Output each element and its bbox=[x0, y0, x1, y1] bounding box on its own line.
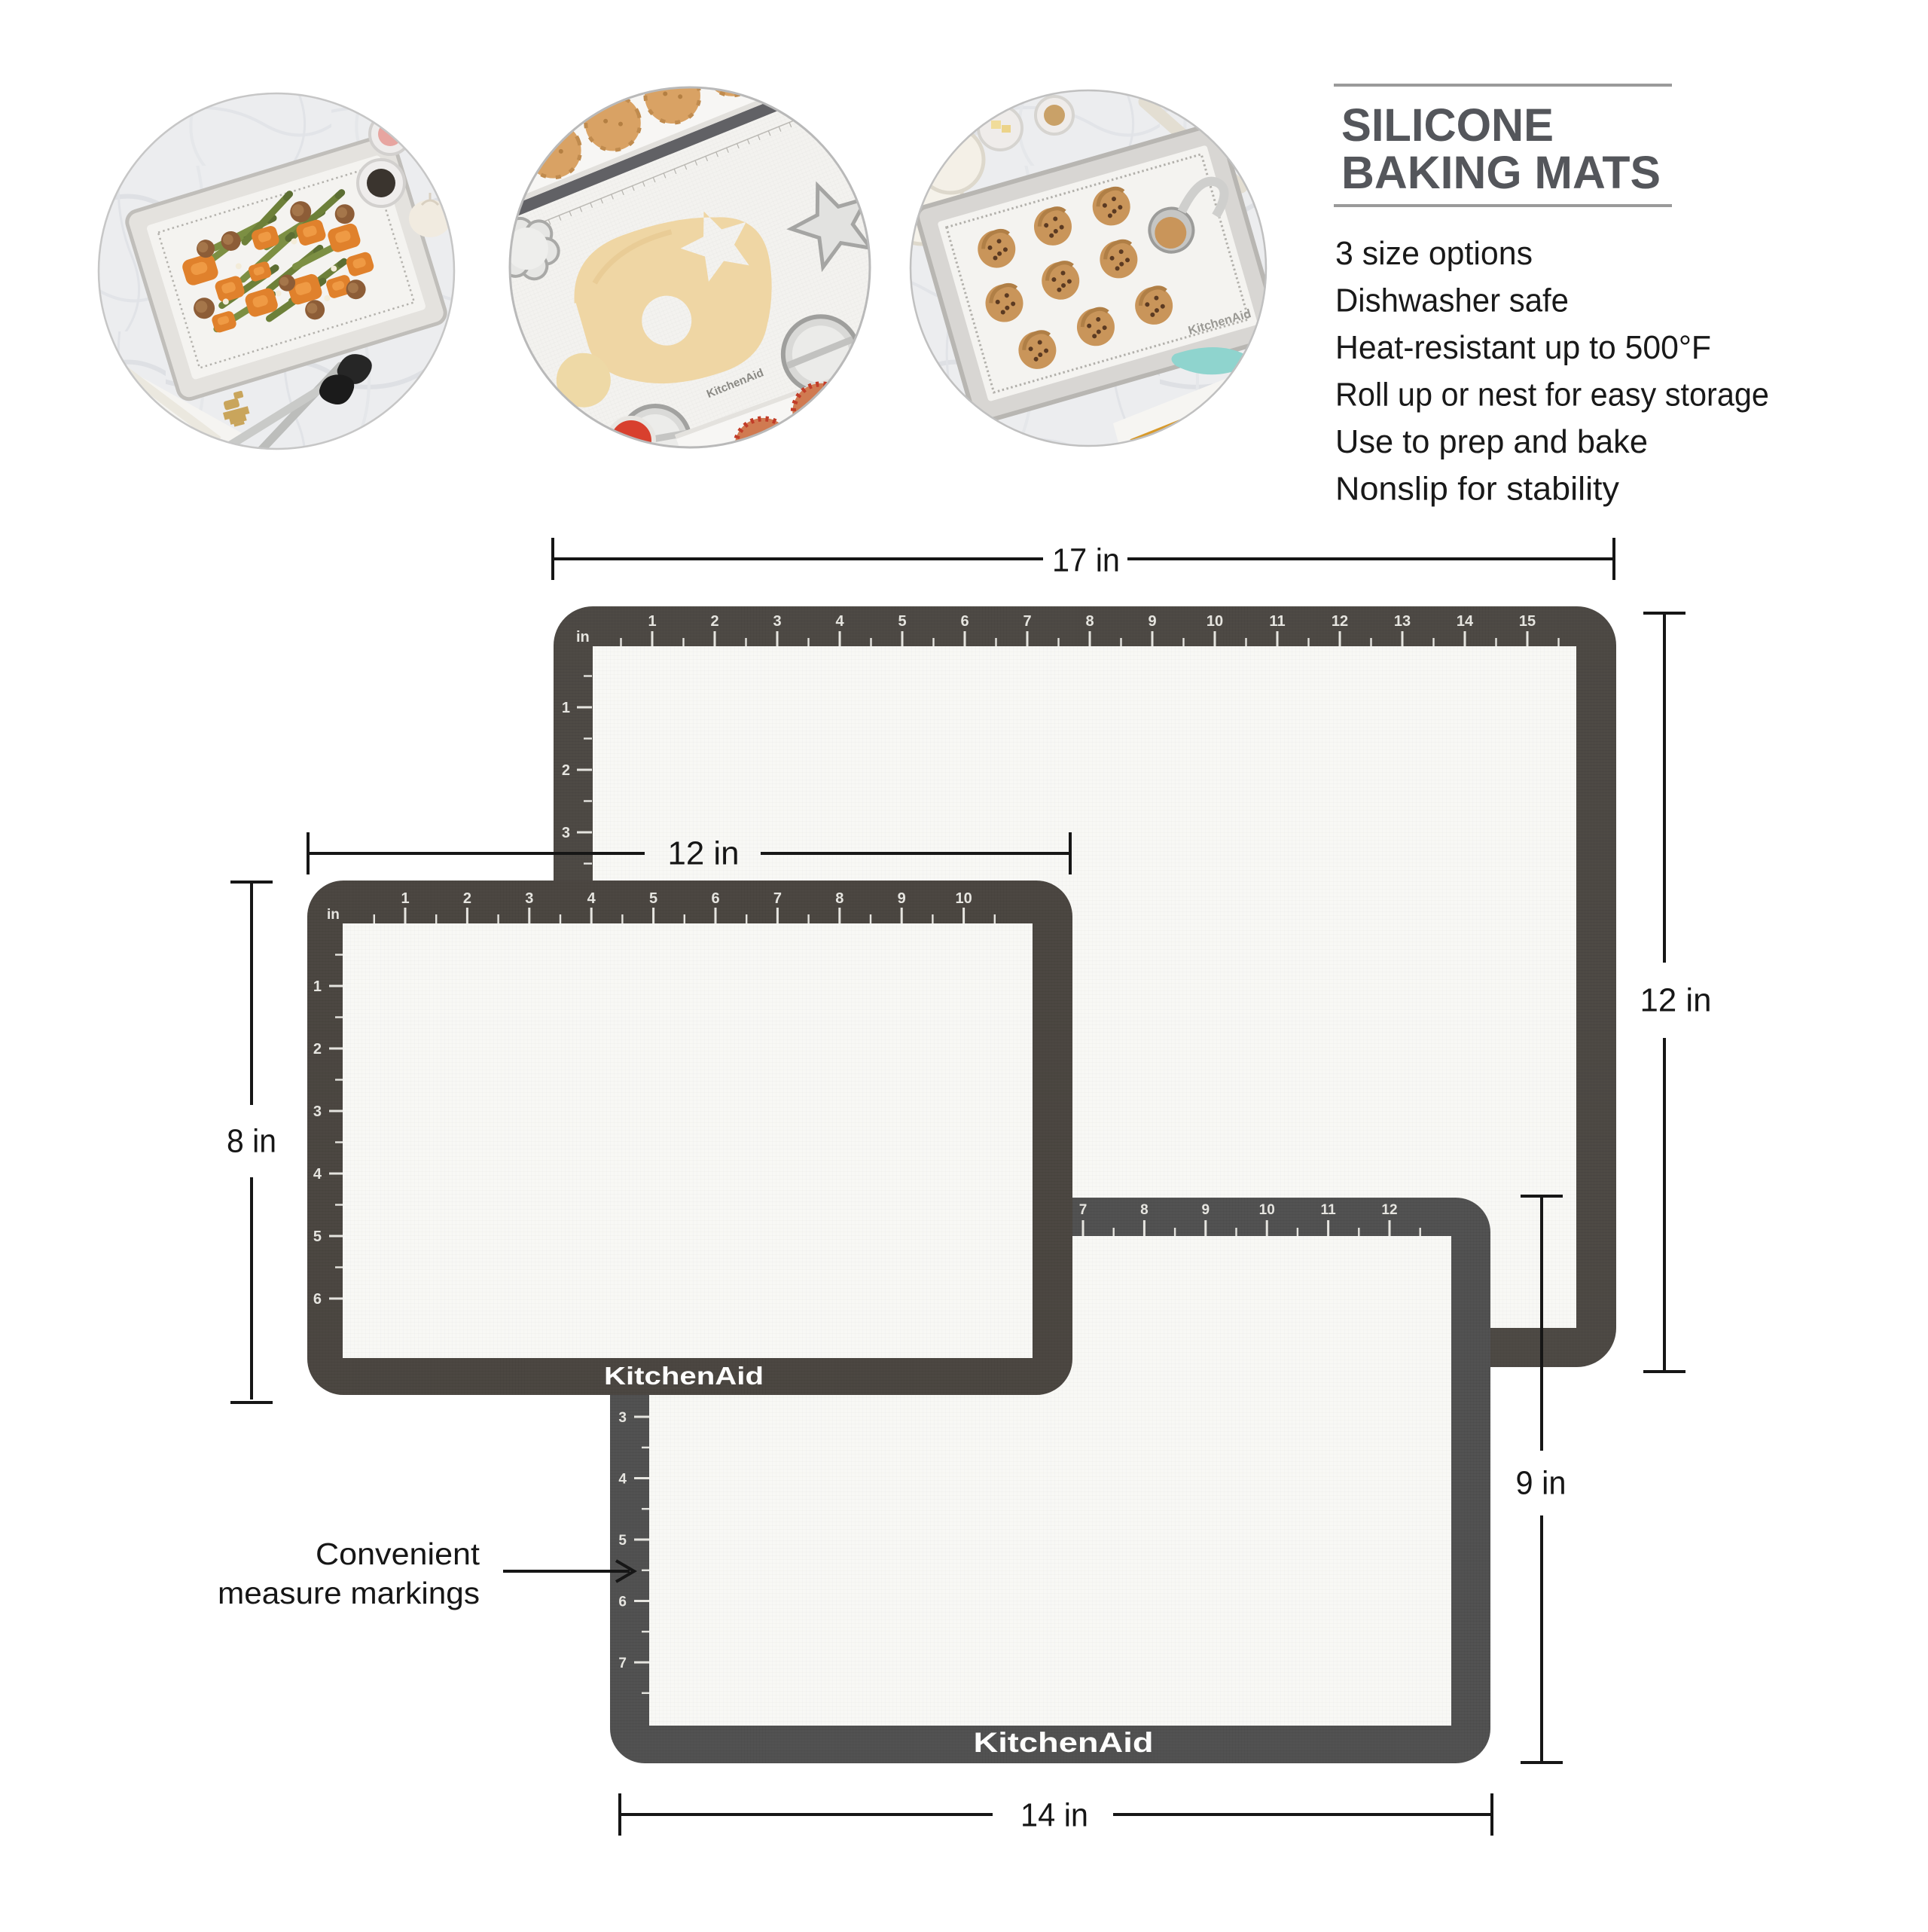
svg-text:measure markings: measure markings bbox=[218, 1576, 480, 1610]
svg-text:7: 7 bbox=[773, 890, 782, 907]
svg-text:1: 1 bbox=[562, 700, 570, 716]
svg-text:7: 7 bbox=[1079, 1202, 1088, 1218]
svg-text:11: 11 bbox=[1269, 613, 1285, 630]
svg-text:6: 6 bbox=[313, 1291, 322, 1308]
svg-text:8: 8 bbox=[1140, 1202, 1149, 1218]
svg-text:3: 3 bbox=[773, 613, 781, 630]
svg-text:SILICONE: SILICONE bbox=[1341, 99, 1554, 151]
svg-text:in: in bbox=[327, 907, 340, 923]
svg-text:17 in: 17 in bbox=[1052, 542, 1120, 579]
svg-text:BAKING MATS: BAKING MATS bbox=[1341, 147, 1661, 198]
svg-text:KitchenAid: KitchenAid bbox=[974, 1727, 1154, 1758]
svg-text:6: 6 bbox=[711, 890, 719, 907]
svg-text:4: 4 bbox=[835, 613, 844, 630]
svg-text:2: 2 bbox=[463, 890, 471, 907]
svg-text:4: 4 bbox=[587, 890, 596, 907]
svg-text:8: 8 bbox=[1085, 613, 1094, 630]
svg-text:10: 10 bbox=[955, 890, 972, 907]
svg-text:1: 1 bbox=[648, 613, 656, 630]
svg-text:Use to prep and bake: Use to prep and bake bbox=[1335, 423, 1648, 460]
svg-text:2: 2 bbox=[710, 613, 718, 630]
svg-text:Nonslip for stability: Nonslip for stability bbox=[1335, 471, 1619, 508]
svg-text:7: 7 bbox=[618, 1656, 627, 1671]
svg-text:2: 2 bbox=[313, 1041, 322, 1058]
svg-text:Heat-resistant up to 500°F: Heat-resistant up to 500°F bbox=[1335, 329, 1711, 366]
svg-text:9: 9 bbox=[898, 890, 906, 907]
svg-text:3: 3 bbox=[525, 890, 533, 907]
svg-text:Roll up or nest for easy stora: Roll up or nest for easy storage bbox=[1335, 377, 1769, 414]
svg-text:14 in: 14 in bbox=[1020, 1797, 1088, 1834]
svg-text:8: 8 bbox=[835, 890, 843, 907]
svg-text:13: 13 bbox=[1394, 613, 1411, 630]
svg-text:9 in: 9 in bbox=[1516, 1465, 1566, 1502]
svg-text:9: 9 bbox=[1202, 1202, 1210, 1218]
svg-text:Convenient: Convenient bbox=[316, 1537, 480, 1571]
svg-text:15: 15 bbox=[1519, 613, 1536, 630]
svg-text:4: 4 bbox=[618, 1472, 627, 1488]
svg-text:4: 4 bbox=[313, 1166, 322, 1183]
svg-text:5: 5 bbox=[898, 613, 906, 630]
svg-text:12 in: 12 in bbox=[668, 835, 740, 872]
svg-text:1: 1 bbox=[313, 978, 322, 995]
svg-text:6: 6 bbox=[618, 1595, 627, 1610]
svg-text:5: 5 bbox=[649, 890, 657, 907]
svg-text:14: 14 bbox=[1457, 613, 1474, 630]
svg-text:9: 9 bbox=[1148, 613, 1156, 630]
svg-text:KitchenAid: KitchenAid bbox=[604, 1362, 764, 1390]
svg-text:10: 10 bbox=[1207, 613, 1223, 630]
svg-text:3: 3 bbox=[313, 1103, 322, 1120]
svg-text:7: 7 bbox=[1023, 613, 1031, 630]
svg-text:5: 5 bbox=[313, 1228, 322, 1245]
svg-text:8 in: 8 in bbox=[227, 1123, 276, 1160]
svg-text:11: 11 bbox=[1321, 1202, 1337, 1218]
svg-text:12 in: 12 in bbox=[1640, 982, 1712, 1019]
svg-text:Dishwasher safe: Dishwasher safe bbox=[1335, 282, 1569, 319]
svg-text:6: 6 bbox=[960, 613, 969, 630]
svg-text:in: in bbox=[576, 629, 590, 646]
svg-text:12: 12 bbox=[1381, 1202, 1397, 1218]
svg-text:1: 1 bbox=[401, 890, 409, 907]
svg-text:10: 10 bbox=[1259, 1202, 1275, 1218]
svg-text:3 size options: 3 size options bbox=[1335, 235, 1533, 272]
svg-text:3: 3 bbox=[618, 1410, 627, 1426]
svg-text:5: 5 bbox=[618, 1533, 627, 1549]
svg-text:3: 3 bbox=[562, 825, 570, 841]
svg-text:12: 12 bbox=[1332, 613, 1348, 630]
svg-text:2: 2 bbox=[562, 762, 570, 779]
